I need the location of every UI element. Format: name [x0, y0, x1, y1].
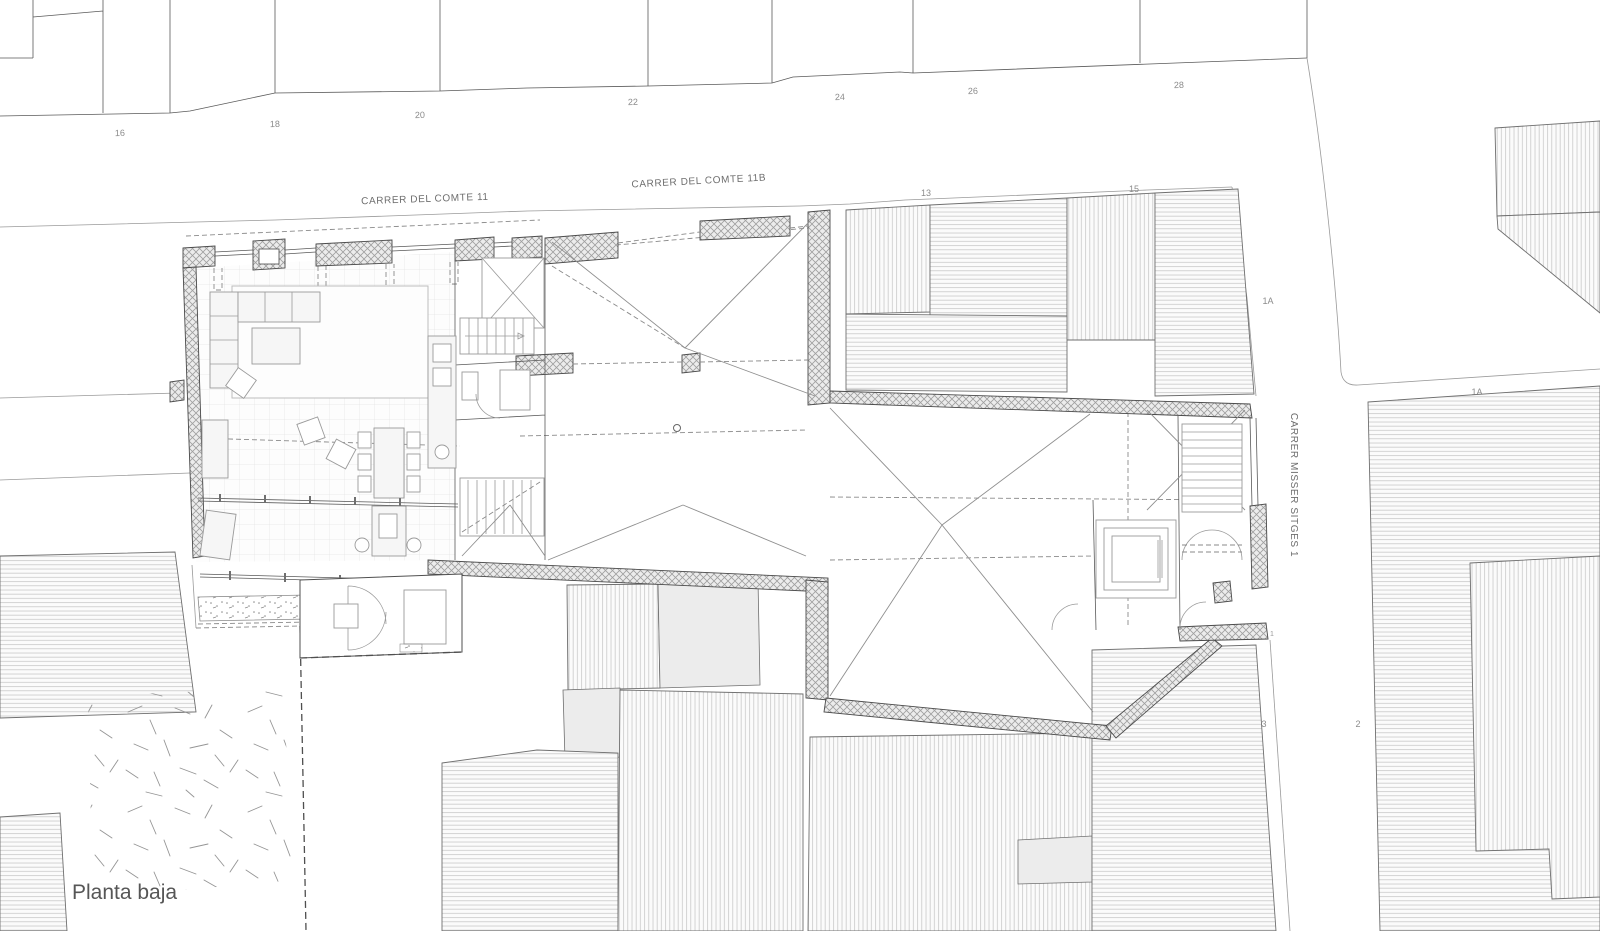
east-stair: [1182, 424, 1242, 560]
vegetation-scatter: [88, 688, 296, 892]
annex-room: [300, 574, 462, 658]
sink: [435, 445, 449, 459]
house-number-1: 1: [1270, 631, 1274, 638]
house-number-28: 28: [1174, 80, 1184, 90]
chair: [358, 476, 371, 492]
chair: [358, 454, 371, 470]
south-parcels: [442, 580, 1276, 931]
northeast-buildings: [1495, 121, 1600, 313]
armchair: [200, 510, 236, 560]
parcels-13-15: [846, 189, 1254, 396]
house-number-13: 13: [921, 188, 931, 198]
street-label-carrer-del-comte-11b: CARRER DEL COMTE 11B: [631, 172, 766, 190]
plan-title: Planta baja: [72, 881, 177, 904]
house-number-20: 20: [415, 110, 425, 120]
house-number-18: 18: [270, 119, 280, 129]
stool: [355, 538, 369, 552]
bath-room: [1096, 520, 1176, 598]
house-number-16: 16: [115, 128, 125, 138]
chair: [407, 454, 420, 470]
courtyard-drain: [674, 425, 681, 432]
dining-table: [374, 428, 404, 498]
house-number-1a-north: 1A: [1262, 296, 1273, 306]
house-number-3: 3: [1261, 719, 1266, 729]
stool: [407, 538, 421, 552]
toilet: [462, 372, 478, 400]
house-number-2: 2: [1355, 719, 1360, 729]
chair: [407, 476, 420, 492]
bench: [202, 420, 228, 478]
chair: [407, 432, 420, 448]
corner-parcel-1a: [1368, 386, 1600, 931]
house-stair-zone: [460, 258, 544, 536]
chair: [358, 432, 371, 448]
street-label-carrer-del-comte-11: CARRER DEL COMTE 11: [361, 192, 489, 207]
cabinet: [334, 604, 358, 628]
floor-plan-drawing: CARRER DEL COMTE 11 CARRER DEL COMTE 11B…: [0, 0, 1600, 931]
door-swing: [1052, 602, 1206, 630]
house-number-22: 22: [628, 97, 638, 107]
shower: [500, 370, 530, 410]
house-number-24: 24: [835, 92, 845, 102]
bathtub: [1112, 536, 1160, 582]
house-number-26: 26: [968, 86, 978, 96]
street-label-carrer-misser-sitges: CARRER MISSER SITGES 1: [1288, 413, 1299, 557]
house-number-15: 15: [1129, 184, 1139, 194]
north-parcels: [0, 0, 1307, 116]
floor-plan-canvas: CARRER DEL COMTE 11 CARRER DEL COMTE 11B…: [0, 0, 1600, 931]
